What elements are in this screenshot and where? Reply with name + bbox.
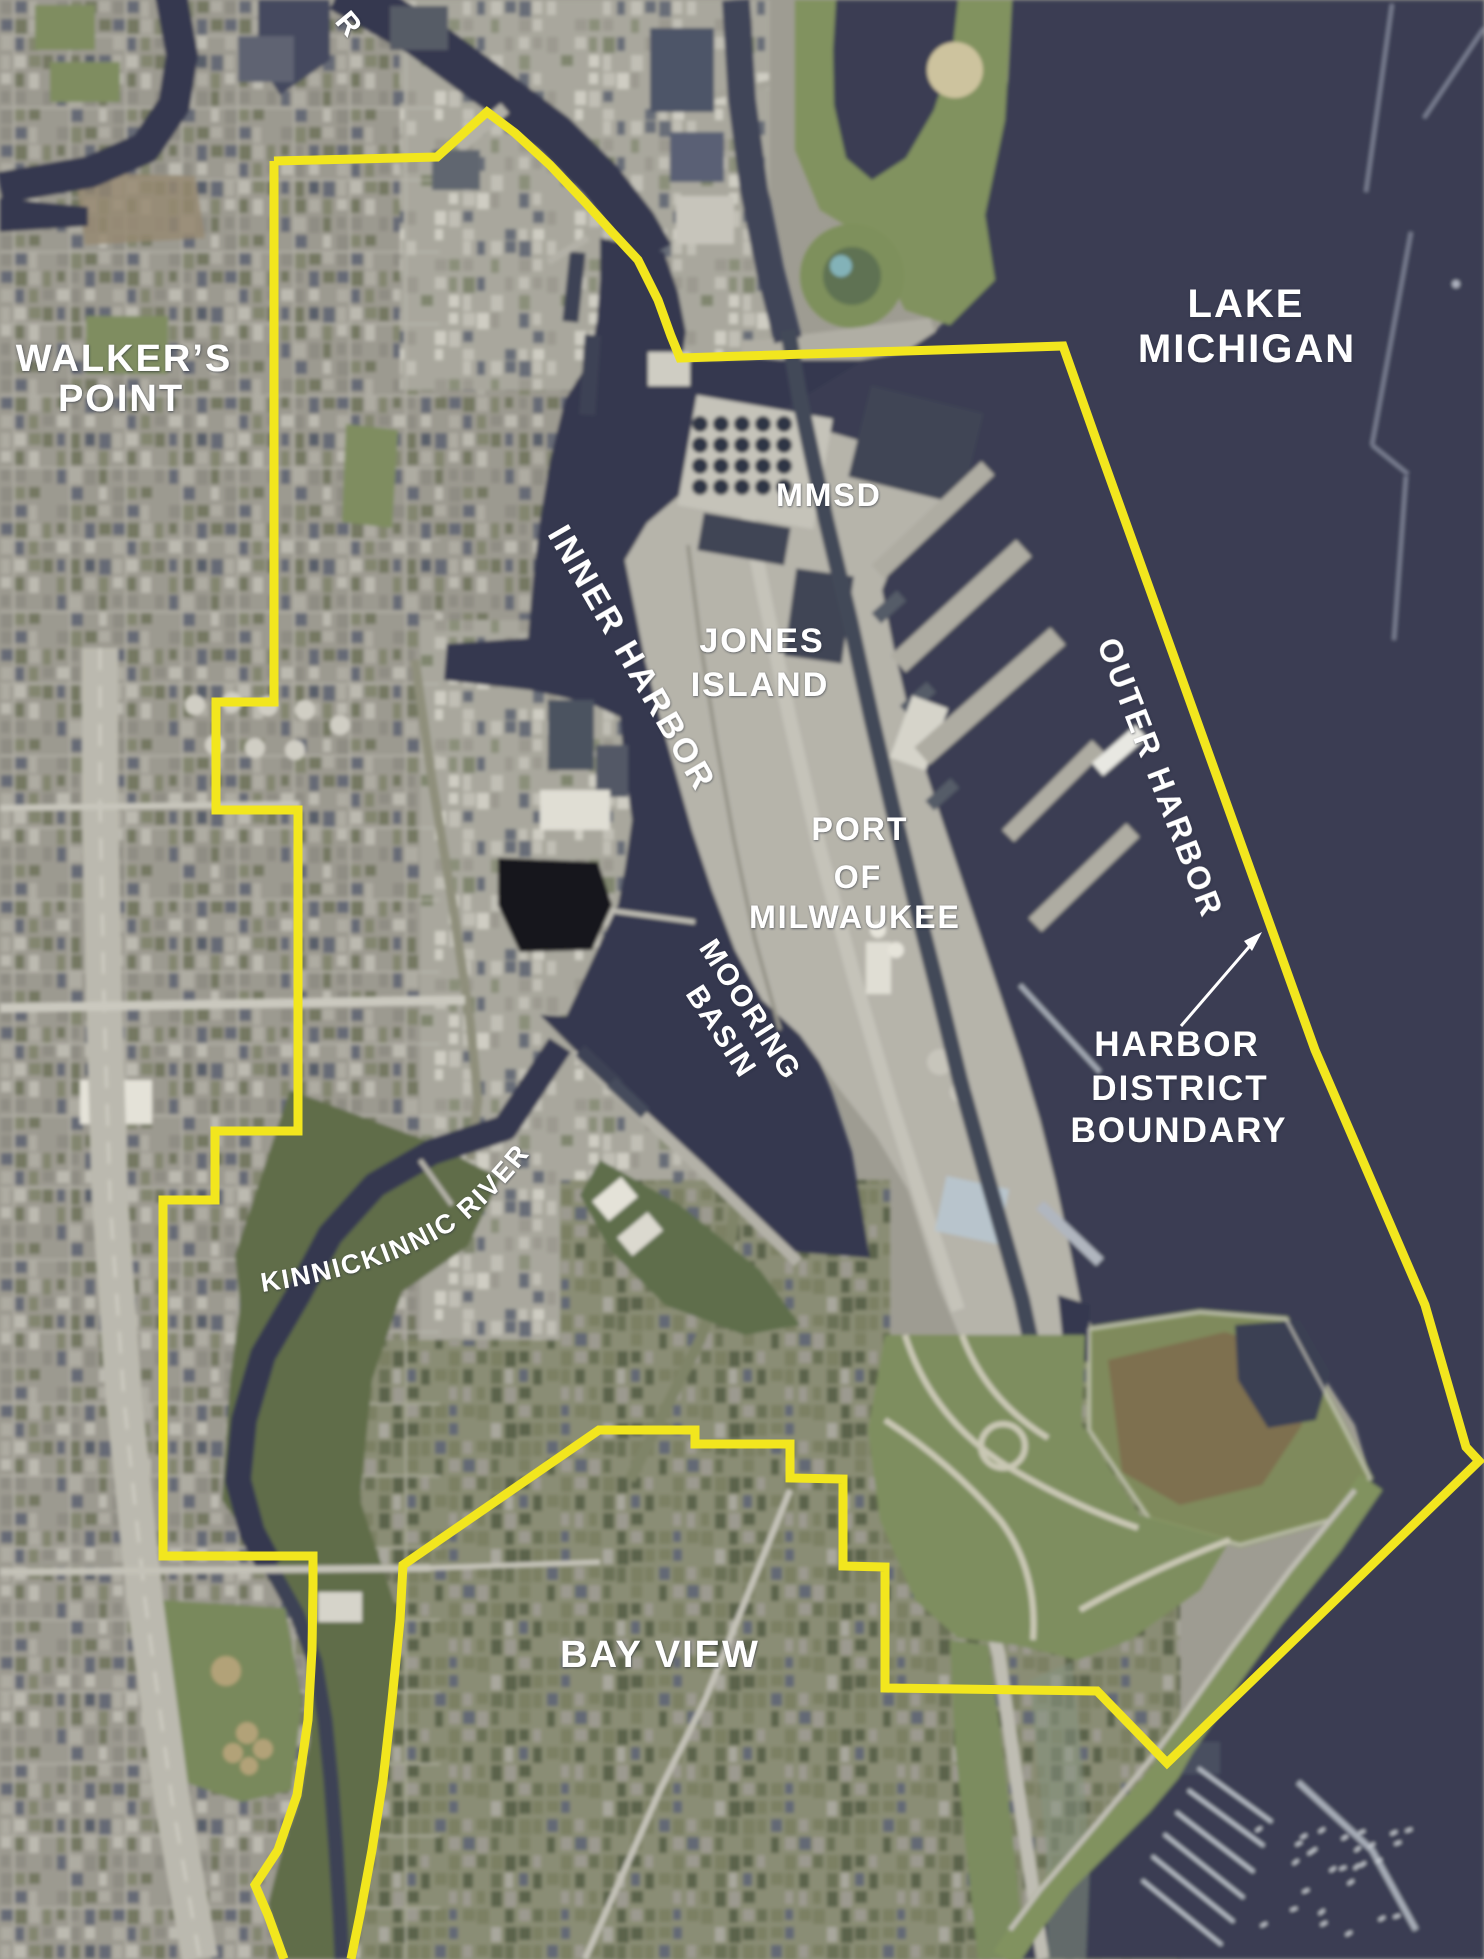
svg-text:MILWAUKEE: MILWAUKEE: [749, 899, 961, 935]
svg-text:WALKER’S: WALKER’S: [16, 338, 233, 380]
svg-text:ISLAND: ISLAND: [691, 666, 830, 704]
svg-text:HARBOR: HARBOR: [1094, 1025, 1260, 1064]
svg-text:POINT: POINT: [58, 378, 184, 420]
svg-text:BAY VIEW: BAY VIEW: [560, 1634, 760, 1676]
svg-text:DISTRICT: DISTRICT: [1091, 1069, 1268, 1108]
svg-text:LAKE: LAKE: [1188, 282, 1305, 326]
svg-text:OF: OF: [834, 859, 882, 895]
svg-text:PORT: PORT: [812, 811, 909, 847]
svg-text:MICHIGAN: MICHIGAN: [1138, 327, 1356, 371]
svg-text:JONES: JONES: [699, 622, 824, 660]
svg-text:MMSD: MMSD: [776, 477, 882, 513]
svg-text:BOUNDARY: BOUNDARY: [1071, 1111, 1288, 1150]
